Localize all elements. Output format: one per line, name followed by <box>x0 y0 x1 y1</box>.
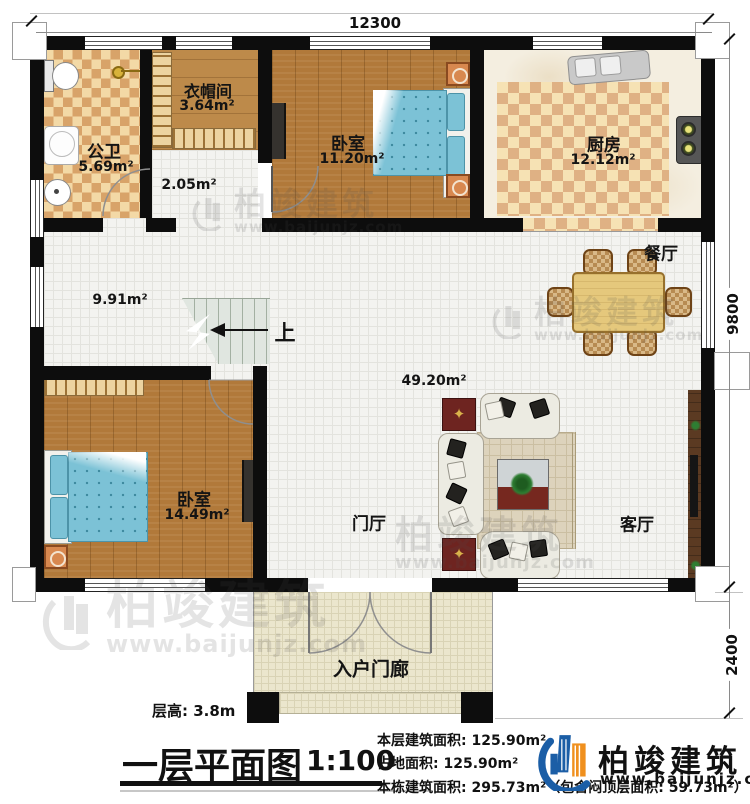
toilet-bowl-icon <box>52 62 79 90</box>
sofa-pillow <box>508 541 528 561</box>
floor-plan-canvas: ✦ ✦ 公卫 5.69m² 衣帽间 3.64m² 2.05m² 卧室 11.20… <box>0 0 750 804</box>
dim-line-right <box>729 36 730 718</box>
window-top-bedroom <box>310 36 430 50</box>
porch-step <box>279 692 462 714</box>
watermark-logo-icon <box>42 588 98 650</box>
wall-h-corner-block <box>146 218 176 232</box>
shower-bowl-icon <box>49 131 75 157</box>
window-top-cloakroom <box>176 36 232 50</box>
wall-bedroom-lower-top <box>30 366 211 380</box>
washbasin-drain-icon <box>54 189 59 194</box>
room-area-kitchen: 12.12m² <box>570 152 635 168</box>
wall-bathroom-right <box>140 50 152 218</box>
towel-bar-icon <box>121 70 141 72</box>
tv-bedroom-top <box>272 103 286 159</box>
wall-h-under-bedroom <box>262 218 523 232</box>
entry-door-opening <box>308 578 432 592</box>
floor-height-label: 层高: 3.8m <box>152 700 235 721</box>
wall-bedroom-kitchen <box>470 50 484 232</box>
bed-lower-pillow-1 <box>50 455 68 495</box>
stairs-up-label: 上 <box>275 317 296 347</box>
stat-footprint-area: 占地面积: 125.90m² <box>377 753 518 773</box>
dim-top-value: 12300 <box>344 14 406 32</box>
dim-right-upper-value: 9800 <box>724 288 742 340</box>
room-area-bedroom-top: 11.20m² <box>319 151 384 167</box>
window-top-kitchen <box>533 36 602 50</box>
dim-line-top <box>36 32 712 33</box>
nightstand-top-2 <box>446 174 470 198</box>
stair-arrow-icon <box>203 323 225 337</box>
dim-extension-right-bottom <box>495 718 743 719</box>
nightstand-top-1 <box>446 62 470 86</box>
kitchen-sink-basin-2 <box>599 55 622 76</box>
plant-icon <box>690 420 701 431</box>
room-area-bathroom: 5.69m² <box>78 159 133 175</box>
dining-chair <box>547 287 574 317</box>
room-label-porch: 入户门廊 <box>333 655 409 682</box>
axis-ref-box <box>714 352 750 390</box>
towel-ring-icon <box>112 66 125 79</box>
clothes-rack-horizontal <box>172 128 256 149</box>
plant-icon <box>510 472 534 496</box>
sofa-pillow <box>447 461 467 481</box>
sofa-pillow <box>529 539 548 558</box>
stove-burner-2 <box>681 141 696 156</box>
kitchen-door-sill <box>523 218 658 232</box>
wall-h-kitchen-right <box>658 218 701 232</box>
window-left-bathroom <box>30 180 44 237</box>
tv-living <box>690 455 698 517</box>
stat-floor-area: 本层建筑面积: 125.90m² <box>377 730 546 750</box>
dim-right-lower-value: 2400 <box>723 629 741 681</box>
room-area-great-room: 49.20m² <box>401 373 466 389</box>
brand-url: www.baijunjz.com <box>600 770 750 788</box>
nightstand-lower <box>44 545 68 569</box>
porch-column <box>461 692 493 723</box>
window-right-dining <box>701 242 715 348</box>
bed-top-pillow-1 <box>447 93 465 131</box>
dining-chair <box>583 329 613 356</box>
room-area-cloakroom: 3.64m² <box>179 98 234 114</box>
title-underline <box>120 781 382 786</box>
side-table: ✦ <box>442 538 476 571</box>
room-area-hall: 9.91m² <box>92 292 147 308</box>
porch-column <box>247 692 279 723</box>
dining-table <box>572 272 665 333</box>
room-area-small-hall: 2.05m² <box>161 177 216 193</box>
side-table: ✦ <box>442 398 476 431</box>
axis-ref-box <box>12 22 47 60</box>
room-label-living: 客厅 <box>620 511 654 536</box>
dining-chair <box>627 329 657 356</box>
wall-cloakroom-bedroom <box>258 50 272 163</box>
stair-direction-line <box>218 329 268 331</box>
axis-ref-box <box>695 566 730 602</box>
window-bottom-living <box>518 578 668 592</box>
kitchen-tile-inset <box>497 82 669 216</box>
dining-chair <box>665 287 692 317</box>
room-label-foyer: 门厅 <box>352 510 386 535</box>
room-area-bedroom-lower: 14.49m² <box>164 507 229 523</box>
axis-ref-box <box>12 567 36 602</box>
window-top-bathroom <box>85 36 162 50</box>
window-left-hall <box>30 267 44 327</box>
brand-logo-icon <box>538 731 596 795</box>
window-bottom-bedroom <box>85 578 205 592</box>
clothes-rack-vertical <box>152 52 172 148</box>
bed-top-pillow-2 <box>447 136 465 176</box>
bed-lower-blanket-fold <box>68 452 146 492</box>
stove-burner-1 <box>681 122 696 137</box>
room-label-dining: 餐厅 <box>644 240 678 265</box>
bed-lower-pillow-2 <box>50 497 68 539</box>
sofa-pillow <box>484 400 504 420</box>
kitchen-sink-basin-1 <box>574 57 597 78</box>
wall-bedroom-lower-right <box>253 366 267 592</box>
